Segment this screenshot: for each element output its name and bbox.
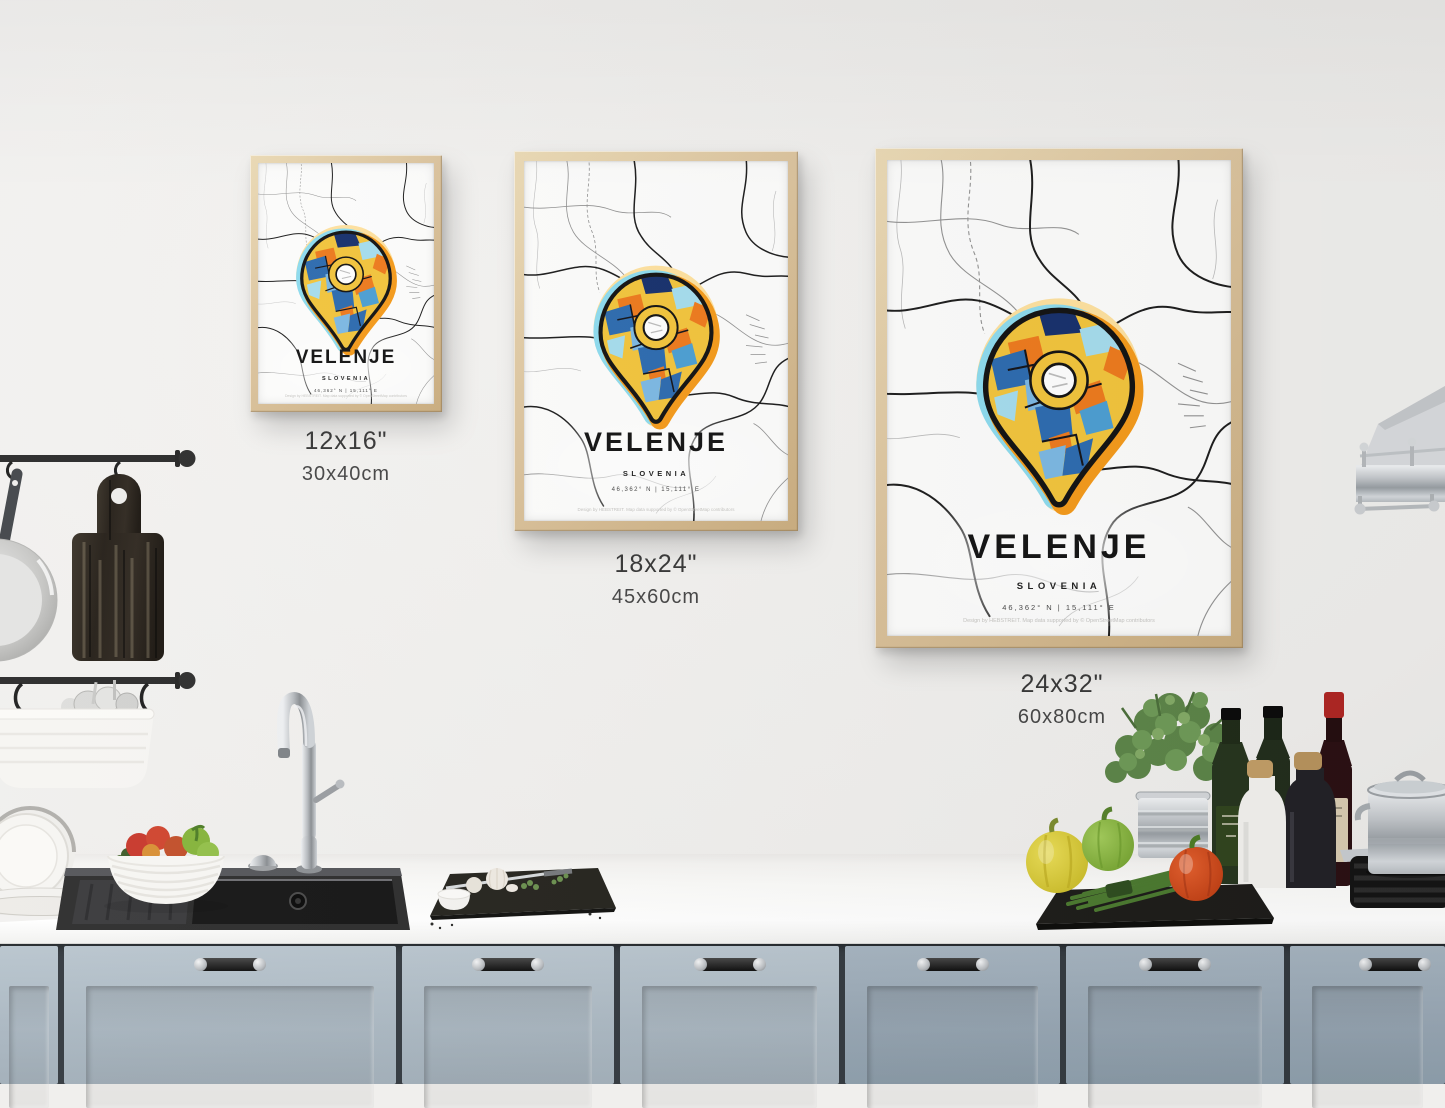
cabinet-door	[620, 946, 839, 1084]
poster-paper: VELENJE SLOVENIA 46,362° N | 15,111° E D…	[258, 163, 434, 404]
size-inches: 18x24"	[514, 550, 798, 579]
size-label-18x24: 18x24" 45x60cm	[514, 550, 798, 609]
cabinet-door-panel	[867, 986, 1038, 1108]
wall-rail-bottom	[0, 672, 196, 689]
cabinet-door-panel	[642, 986, 817, 1108]
faucet	[278, 698, 345, 873]
cabinet-door	[402, 946, 614, 1084]
cabinet-door	[1066, 946, 1284, 1084]
cabinet-door-panel	[424, 986, 592, 1108]
wall-rail-top	[0, 450, 196, 479]
cabinet-handle	[1143, 958, 1207, 971]
size-label-24x32: 24x32" 60x80cm	[878, 670, 1246, 729]
poster-frame-small: VELENJE SLOVENIA 46,362° N | 15,111° E D…	[250, 155, 442, 412]
utensil-basket	[0, 680, 154, 788]
cabinet-row	[0, 944, 1445, 1084]
hanging-pan	[0, 474, 57, 661]
hanging-cutting-board	[72, 474, 164, 661]
size-inches: 24x32"	[878, 670, 1246, 699]
poster-title: VELENJE	[258, 347, 434, 369]
cabinet-handle	[198, 958, 262, 971]
range-hood	[1355, 386, 1445, 515]
cabinet-handle	[921, 958, 985, 971]
size-inches: 12x16"	[250, 427, 442, 456]
cabinet-door-panel	[86, 986, 374, 1108]
soap-dispenser	[248, 855, 278, 871]
cabinet-door	[64, 946, 396, 1084]
slate-board	[430, 868, 616, 929]
size-cm: 30x40cm	[250, 463, 442, 486]
size-cm: 60x80cm	[878, 706, 1246, 729]
kitchen-sink	[56, 868, 410, 930]
cabinet-door	[845, 946, 1060, 1084]
size-cm: 45x60cm	[514, 586, 798, 609]
cabinet-door	[0, 946, 58, 1084]
cabinet-door-panel	[9, 986, 49, 1108]
cabinet-handle	[1363, 958, 1427, 971]
cabinet-door-panel	[1088, 986, 1262, 1108]
cabinet-door-panel	[1312, 986, 1423, 1108]
cabinet-door	[1290, 946, 1445, 1084]
cabinet-handle	[698, 958, 762, 971]
stove-and-pot	[1340, 773, 1445, 908]
kitchen-props	[0, 380, 1445, 950]
cabinet-handle	[476, 958, 540, 971]
size-label-12x16: 12x16" 30x40cm	[250, 427, 442, 486]
